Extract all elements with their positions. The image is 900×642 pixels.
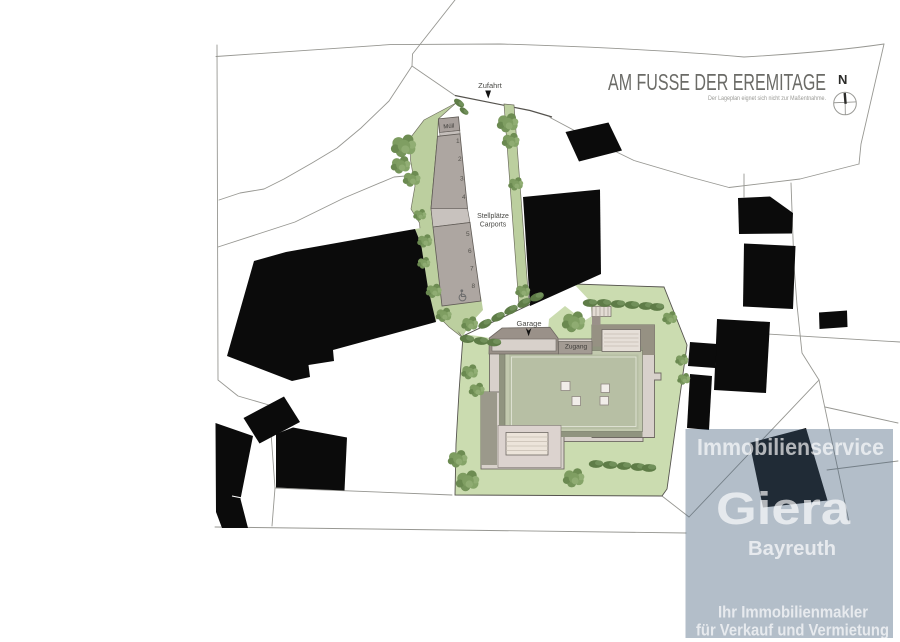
svg-text:Giera: Giera <box>716 483 851 534</box>
svg-text:Immobilienservice: Immobilienservice <box>697 434 884 460</box>
svg-text:Bayreuth: Bayreuth <box>748 538 836 560</box>
svg-text:1: 1 <box>456 138 460 145</box>
svg-text:5: 5 <box>466 231 470 238</box>
svg-text:N: N <box>838 72 847 87</box>
svg-text:Zugang: Zugang <box>565 344 588 351</box>
svg-text:Garage: Garage <box>516 319 541 328</box>
svg-text:6: 6 <box>468 248 472 255</box>
svg-text:3: 3 <box>460 176 464 183</box>
svg-text:für Verkauf und Vermietung: für Verkauf und Vermietung <box>696 622 889 640</box>
svg-text:7: 7 <box>470 266 474 273</box>
svg-text:Der Lageplan eignet sich nicht: Der Lageplan eignet sich nicht zur Maßen… <box>708 95 826 102</box>
svg-text:AM FUSSE DER EREMITAGE: AM FUSSE DER EREMITAGE <box>608 69 826 95</box>
svg-text:Zufahrt: Zufahrt <box>478 81 503 90</box>
svg-text:Stellplätze: Stellplätze <box>477 213 509 220</box>
svg-text:Müll: Müll <box>443 124 454 131</box>
svg-text:2: 2 <box>458 156 462 163</box>
svg-text:Ihr Immobilienmakler: Ihr Immobilienmakler <box>718 604 869 622</box>
svg-text:8: 8 <box>472 283 476 290</box>
svg-text:4: 4 <box>462 194 466 201</box>
svg-text:Carports: Carports <box>480 222 507 229</box>
